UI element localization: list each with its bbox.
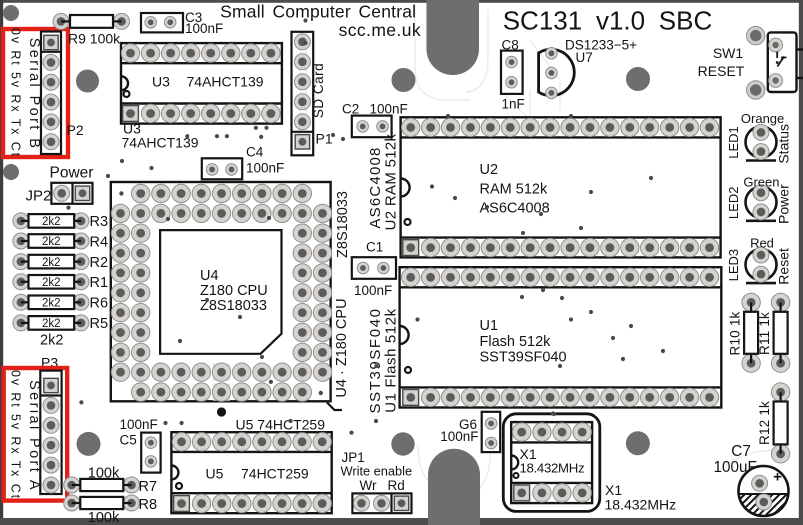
svg-text:Write enable: Write enable <box>341 463 413 478</box>
svg-text:R1: R1 <box>90 275 109 291</box>
svg-text:SC131 v1.0 SBC: SC131 v1.0 SBC <box>503 6 713 36</box>
svg-text:JP2: JP2 <box>26 187 52 204</box>
svg-text:18.432MHz: 18.432MHz <box>520 460 585 475</box>
svg-text:R8: R8 <box>139 497 158 513</box>
svg-text:0v Rt 5v Rx Tx Ct: 0v Rt 5v Rx Tx Ct <box>9 28 23 158</box>
svg-text:SD Card: SD Card <box>311 63 326 118</box>
svg-text:SST39SF040: SST39SF040 <box>367 307 384 413</box>
svg-text:R5: R5 <box>90 316 109 332</box>
svg-text:SW1: SW1 <box>713 45 744 61</box>
svg-text:Reset: Reset <box>776 248 792 285</box>
svg-text:R10 1k: R10 1k <box>727 311 742 355</box>
svg-text:R4: R4 <box>90 234 109 250</box>
svg-text:U5 74HCT259: U5 74HCT259 <box>236 417 326 433</box>
svg-text:Green: Green <box>743 174 779 189</box>
svg-text:LED3: LED3 <box>726 249 741 282</box>
svg-text:RAM 512k: RAM 512k <box>480 182 548 198</box>
svg-text:U1: U1 <box>480 318 499 334</box>
svg-text:U3: U3 <box>152 74 170 90</box>
svg-text:2k2: 2k2 <box>40 332 63 348</box>
svg-text:AS6C4008: AS6C4008 <box>367 146 384 228</box>
svg-text:Orange: Orange <box>741 111 784 126</box>
svg-text:100nF: 100nF <box>440 429 478 444</box>
svg-text:U4: U4 <box>200 268 219 284</box>
svg-text:scc.me.uk: scc.me.uk <box>339 20 421 40</box>
svg-text:100nF: 100nF <box>185 21 223 36</box>
svg-text:U7: U7 <box>576 50 593 65</box>
svg-text:0v Rt 5v Rx Tx Ct: 0v Rt 5v Rx Tx Ct <box>9 370 23 500</box>
svg-text:C5: C5 <box>120 432 137 447</box>
svg-text:Power: Power <box>776 184 792 224</box>
svg-text:Flash 512k: Flash 512k <box>480 334 552 350</box>
svg-text:C4: C4 <box>246 145 264 160</box>
svg-text:C7: C7 <box>731 443 751 460</box>
svg-text:Red: Red <box>750 236 774 251</box>
svg-text:U5: U5 <box>206 465 224 481</box>
svg-text:Wr: Wr <box>360 478 377 493</box>
svg-text:1nF: 1nF <box>502 97 525 112</box>
svg-text:Status: Status <box>776 124 792 164</box>
svg-text:R12 1k: R12 1k <box>757 401 772 445</box>
svg-text:2k2: 2k2 <box>42 298 61 310</box>
svg-text:2k2: 2k2 <box>42 257 61 269</box>
svg-text:2k2: 2k2 <box>42 277 61 289</box>
svg-text:74HCT259: 74HCT259 <box>241 465 309 481</box>
svg-text:100nF: 100nF <box>370 102 408 117</box>
svg-text:U2: U2 <box>480 162 499 178</box>
svg-text:R2: R2 <box>90 255 109 271</box>
svg-text:+: + <box>773 469 782 486</box>
svg-text:U4 · Z180 CPU: U4 · Z180 CPU <box>334 298 350 397</box>
svg-text:P2: P2 <box>67 122 84 138</box>
svg-text:C2: C2 <box>342 102 359 117</box>
svg-text:U1 Flash 512k: U1 Flash 512k <box>383 308 400 413</box>
svg-text:100nF: 100nF <box>354 283 392 298</box>
svg-text:C8: C8 <box>502 38 519 53</box>
svg-text:P1: P1 <box>316 131 333 147</box>
svg-text:100nF: 100nF <box>120 417 158 432</box>
svg-text:100nF: 100nF <box>246 160 284 175</box>
svg-text:Power: Power <box>50 165 94 182</box>
svg-text:Z180 CPU: Z180 CPU <box>200 283 268 299</box>
svg-text:R6: R6 <box>90 296 109 312</box>
svg-text:74AHCT139: 74AHCT139 <box>187 74 264 90</box>
svg-text:RESET: RESET <box>698 63 745 79</box>
svg-text:SST39SF040: SST39SF040 <box>480 350 567 366</box>
svg-text:R3: R3 <box>90 214 109 230</box>
svg-text:Rd: Rd <box>388 478 405 493</box>
svg-text:LED2: LED2 <box>726 187 741 220</box>
svg-text:2k2: 2k2 <box>42 318 61 330</box>
svg-text:R11 1k: R11 1k <box>757 312 772 355</box>
svg-text:100k: 100k <box>88 510 120 525</box>
svg-text:2k2: 2k2 <box>42 216 61 228</box>
svg-text:Z8S18033: Z8S18033 <box>200 298 267 314</box>
svg-text:U2 RAM 512k: U2 RAM 512k <box>383 133 400 230</box>
svg-text:Serial Port B: Serial Port B <box>26 38 42 151</box>
svg-text:Small Computer Central: Small Computer Central <box>220 1 416 21</box>
svg-text:R7: R7 <box>139 479 158 495</box>
svg-text:18.432MHz: 18.432MHz <box>605 496 677 512</box>
svg-text:Z8S18033: Z8S18033 <box>335 191 351 258</box>
svg-text:2k2: 2k2 <box>42 236 61 248</box>
svg-text:C1: C1 <box>366 240 383 255</box>
svg-text:LED1: LED1 <box>726 126 741 159</box>
svg-text:R9 100k: R9 100k <box>68 31 121 47</box>
